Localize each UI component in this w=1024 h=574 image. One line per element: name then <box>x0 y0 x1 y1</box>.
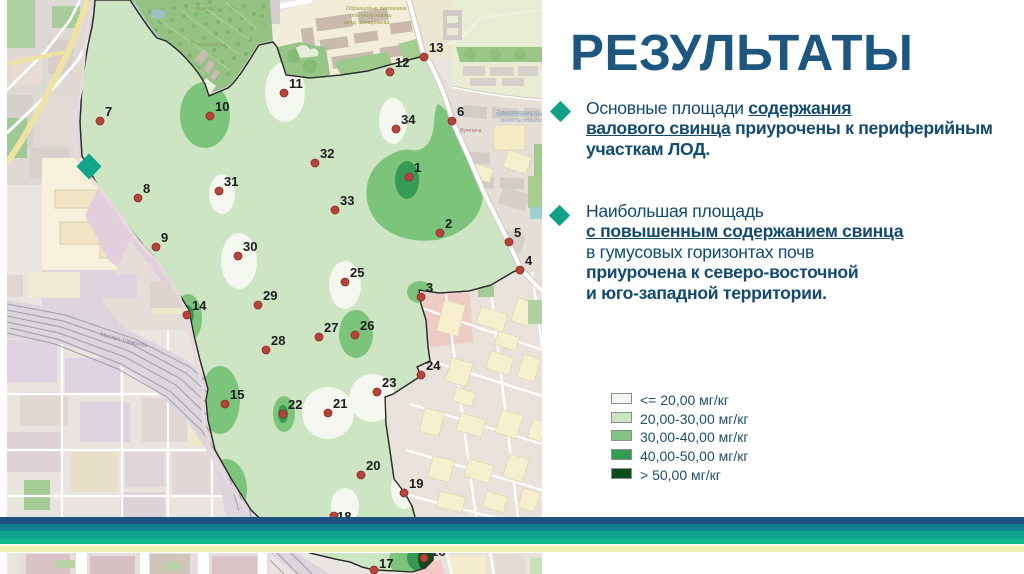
svg-text:28: 28 <box>271 333 285 348</box>
svg-text:29: 29 <box>263 288 277 303</box>
svg-text:линия Октябрьской ж/д: линия Октябрьской ж/д <box>500 117 542 124</box>
svg-text:Парк-сад: Парк-сад <box>196 6 215 11</box>
svg-text:12: 12 <box>395 55 409 70</box>
svg-text:1: 1 <box>414 160 421 175</box>
svg-text:33: 33 <box>340 193 354 208</box>
svg-text:27: 27 <box>324 320 338 335</box>
svg-text:11: 11 <box>289 76 303 91</box>
svg-text:24: 24 <box>426 358 441 373</box>
svg-text:10: 10 <box>215 99 229 114</box>
svg-text:19: 19 <box>409 476 423 491</box>
svg-text:Плодовый сад: Плодовый сад <box>196 41 227 47</box>
svg-text:15: 15 <box>230 387 244 402</box>
svg-text:4: 4 <box>525 253 533 268</box>
svg-text:14: 14 <box>192 298 207 313</box>
svg-text:13: 13 <box>429 40 443 55</box>
svg-text:32: 32 <box>320 146 334 161</box>
svg-text:31: 31 <box>224 174 238 189</box>
svg-text:30: 30 <box>243 239 257 254</box>
svg-text:Образцовые питомники: Образцовые питомники <box>346 6 407 12</box>
svg-text:6: 6 <box>457 104 464 119</box>
svg-text:7: 7 <box>105 104 112 119</box>
svg-text:5: 5 <box>514 225 521 240</box>
svg-text:8: 8 <box>143 181 150 196</box>
svg-text:25: 25 <box>350 265 364 280</box>
svg-text:опытного хоз-ва: опытного хоз-ва <box>350 13 392 19</box>
svg-text:9: 9 <box>161 230 168 245</box>
svg-text:22: 22 <box>288 397 302 412</box>
svg-text:акад. Тимирязева: акад. Тимирязева <box>344 20 390 26</box>
svg-text:20: 20 <box>366 458 380 473</box>
svg-text:3: 3 <box>426 280 433 295</box>
svg-text:34: 34 <box>401 112 416 127</box>
svg-text:23: 23 <box>382 375 396 390</box>
svg-text:2: 2 <box>445 216 452 231</box>
svg-text:17: 17 <box>379 556 393 571</box>
svg-text:26: 26 <box>360 318 374 333</box>
svg-text:Тимирязевская ул.: Тимирязевская ул. <box>497 110 540 116</box>
svg-text:21: 21 <box>333 396 347 411</box>
